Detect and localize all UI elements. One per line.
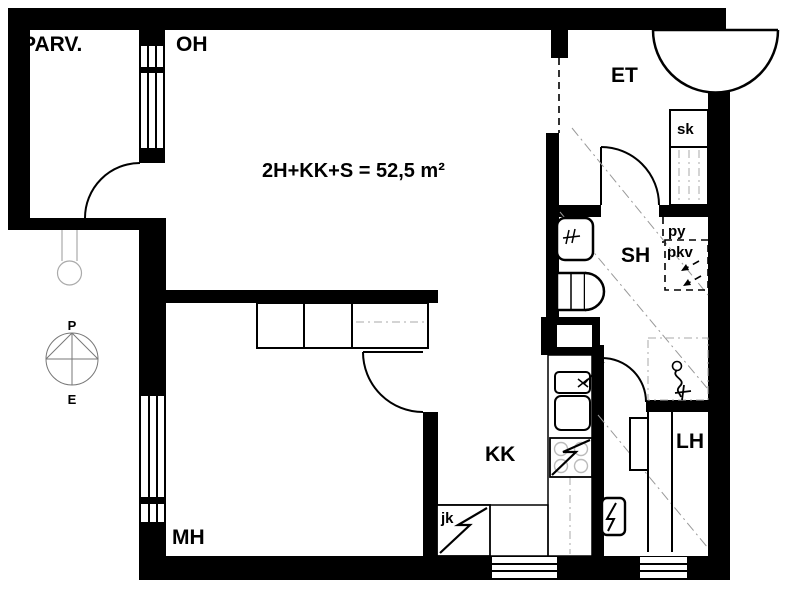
window-living-large	[141, 73, 163, 148]
label-laundry-py: py	[668, 223, 686, 240]
duct-shaft-inner	[557, 325, 592, 347]
toilet	[557, 273, 604, 310]
wall-right-outer	[708, 88, 730, 556]
closet-3-wardrobe	[352, 303, 428, 348]
balcony-door-arc	[85, 163, 140, 218]
electric-heater-symbol	[602, 498, 625, 535]
window-bedroom	[141, 396, 164, 522]
label-dryer-pkv: pkv	[667, 244, 694, 261]
label-compass-south: E	[68, 392, 77, 407]
floor-plan-drawing: PARV. OH ET 2H+KK+S = 52,5 m² SH LH KK M…	[0, 0, 794, 595]
sauna-door	[602, 358, 646, 402]
wall-living-entrance-stub	[551, 30, 568, 58]
washbasin	[557, 218, 593, 260]
window-sauna	[640, 557, 687, 578]
label-shower-room: SH	[621, 244, 650, 267]
label-entrance: ET	[611, 64, 638, 87]
label-compass-north: P	[68, 318, 77, 333]
closet-2	[304, 303, 352, 348]
wall-sauna-top	[646, 400, 708, 412]
wall-shower-top-right	[659, 205, 708, 217]
label-area: 2H+KK+S = 52,5 m²	[262, 160, 445, 182]
stove	[550, 438, 592, 477]
entrance-door	[653, 30, 778, 93]
wall-shower-top-left	[546, 205, 601, 217]
closet-1	[257, 303, 304, 348]
sauna-heater	[630, 418, 648, 470]
shower-door	[601, 147, 659, 205]
label-bedroom: MH	[172, 526, 205, 549]
label-sauna: LH	[676, 430, 704, 453]
wall-top	[8, 8, 726, 30]
label-balcony: PARV.	[22, 33, 82, 56]
compass	[46, 333, 98, 385]
window-kitchenette	[492, 557, 557, 578]
label-living-room: OH	[176, 33, 208, 56]
label-closet-sk: sk	[677, 121, 694, 138]
wall-bedroom-right	[423, 412, 438, 556]
wall-bedroom-top	[139, 290, 438, 303]
window-living-small	[141, 46, 163, 67]
floor-plan: PARV. OH ET 2H+KK+S = 52,5 m² SH LH KK M…	[0, 0, 794, 595]
balcony-drain	[58, 230, 82, 285]
label-fridge-jk: jk	[440, 510, 454, 527]
label-kitchenette: KK	[485, 443, 515, 466]
shower-mixer	[673, 362, 692, 401]
wall-balcony-bottom	[8, 218, 140, 230]
bedroom-door	[363, 352, 423, 412]
